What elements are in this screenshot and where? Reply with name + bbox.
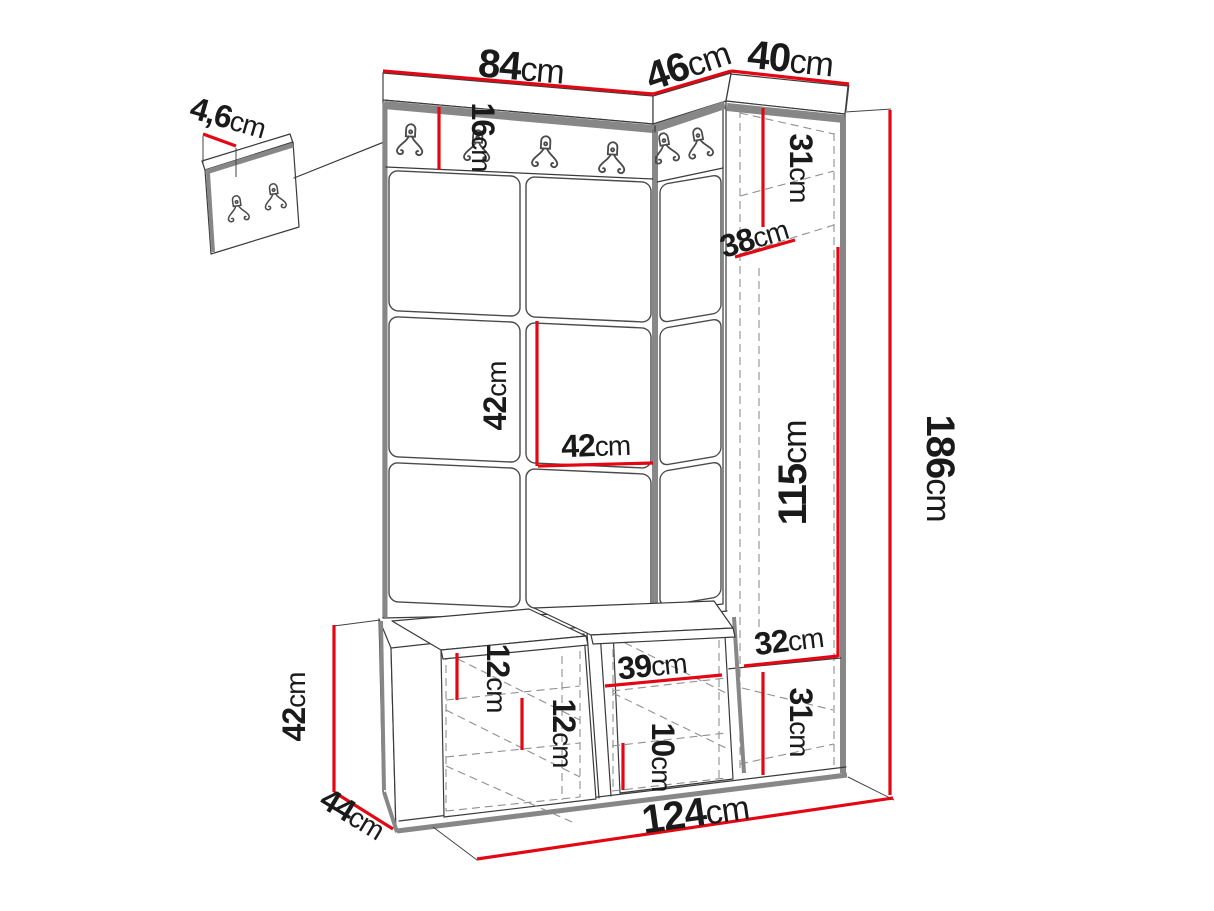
- padded-tiles-grid: [389, 171, 651, 614]
- dimension-label-12cm-a: 12cm: [480, 644, 516, 713]
- padded-tile: [389, 463, 520, 608]
- dimension-label-84cm: 84cm: [476, 41, 565, 92]
- padded-tile: [526, 177, 651, 323]
- dimension-label-186cm: 186cm: [918, 414, 962, 521]
- padded-tile: [526, 469, 651, 614]
- padded-tile: [660, 461, 721, 606]
- detail-callout-line: [294, 140, 389, 178]
- padded-tile: [389, 171, 520, 317]
- padded-tile: [660, 174, 721, 322]
- dimension-label-10cm: 10cm: [645, 723, 681, 792]
- dimension-label-42cm-horizontal: 42cm: [561, 426, 631, 464]
- dimension-label-115cm: 115cm: [771, 421, 815, 526]
- corner-tiles-grid: [660, 174, 721, 606]
- padded-tile: [660, 318, 721, 465]
- dimension-label-16cm: 16cm: [465, 103, 501, 172]
- dimension-label-40cm: 40cm: [745, 33, 835, 86]
- dimension-label-31cm-top: 31cm: [783, 134, 819, 203]
- hook-panel-detail: [202, 134, 389, 254]
- dimension-label-31cm-bottom: 31cm: [783, 688, 819, 757]
- diagram-canvas: 84cm 46cm 40cm 4,6cm 16cm 31cm 38cm 42cm…: [0, 0, 1214, 911]
- dimension-label-44cm: 44cm: [314, 780, 392, 846]
- dimension-label-12cm-b: 12cm: [546, 699, 582, 768]
- dimension-label-42cm-bench: 42cm: [276, 673, 312, 742]
- corner-panel: [651, 73, 731, 611]
- dimension-label-42cm-vertical: 42cm: [477, 362, 513, 431]
- dimension-label-4-6cm: 4,6cm: [186, 90, 270, 146]
- main-panel: [383, 73, 653, 618]
- furniture-dimension-diagram: 84cm 46cm 40cm 4,6cm 16cm 31cm 38cm 42cm…: [0, 0, 1214, 911]
